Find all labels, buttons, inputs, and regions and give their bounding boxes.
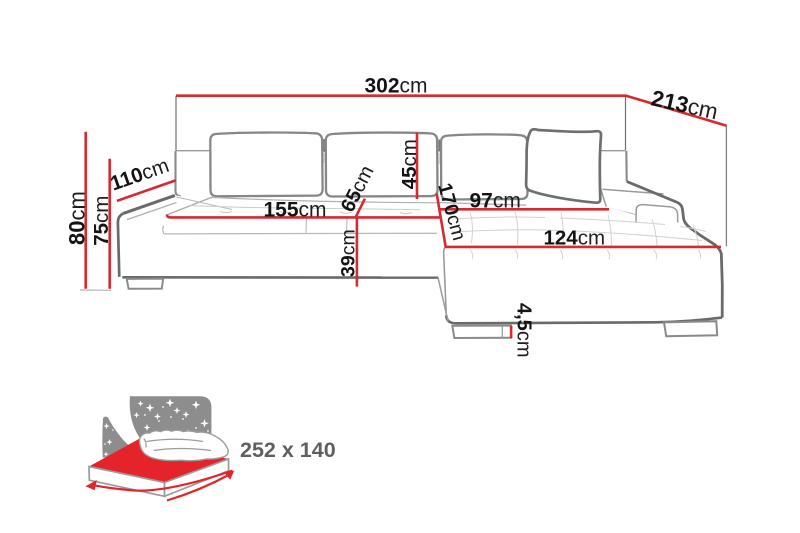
svg-text:45cm: 45cm <box>398 139 421 189</box>
svg-text:75cm: 75cm <box>90 196 113 246</box>
svg-text:39cm: 39cm <box>338 229 360 277</box>
svg-text:97cm: 97cm <box>470 190 521 213</box>
svg-text:80cm: 80cm <box>65 191 90 245</box>
svg-text:4,5cm: 4,5cm <box>513 303 535 357</box>
svg-text:302cm: 302cm <box>365 75 428 98</box>
svg-text:155cm: 155cm <box>264 199 327 222</box>
svg-text:124cm: 124cm <box>544 226 606 249</box>
svg-text:252 x 140: 252 x 140 <box>240 438 336 462</box>
